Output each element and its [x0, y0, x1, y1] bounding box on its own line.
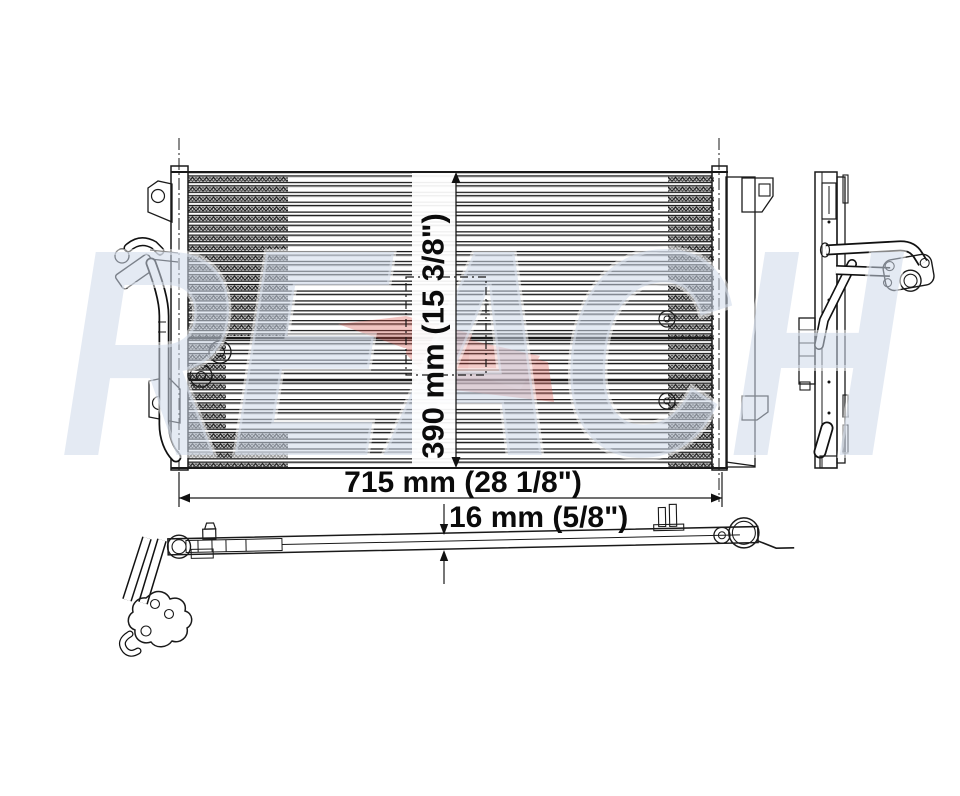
bar-inner-line — [282, 535, 740, 545]
arrowhead-up — [440, 550, 448, 561]
width-dimension-label: 715 mm (28 1/8") — [344, 468, 582, 498]
flange-hole — [141, 626, 151, 636]
condenser-line-art: REACH — [0, 0, 960, 796]
left-ring-inner — [172, 540, 186, 554]
hose-flange — [128, 592, 191, 647]
flange-hole — [165, 610, 174, 619]
bracket-base — [654, 524, 684, 531]
right-tail-line — [757, 540, 794, 549]
flange-hole — [151, 600, 160, 609]
depth-dimension-label: 16 mm (5/8") — [449, 503, 628, 533]
bolt-cap — [205, 523, 216, 529]
bar-left-section — [186, 539, 282, 553]
height-dimension-label: 390 mm (15 3/8") — [418, 213, 449, 459]
condenser-technical-drawing: REACH 715 mm (28 1/8") 390 mm (15 3/8") … — [0, 0, 960, 796]
right-ring-large-inner — [732, 521, 755, 544]
section-ticks — [198, 539, 246, 552]
